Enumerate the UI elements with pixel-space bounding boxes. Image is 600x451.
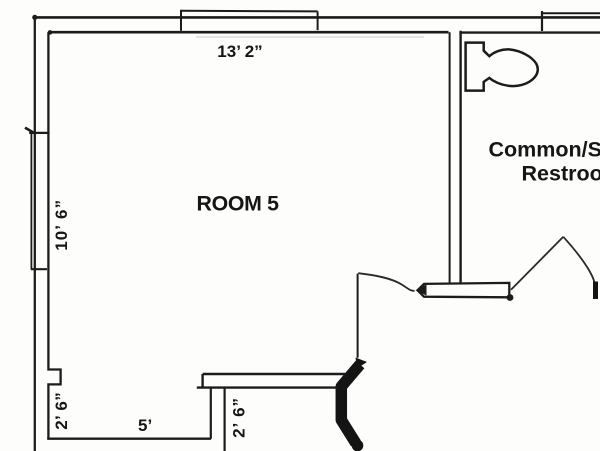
svg-text:Common/Shared: Common/Shared — [489, 137, 600, 161]
svg-text:5’: 5’ — [138, 416, 152, 435]
svg-text:2’ 6”: 2’ 6” — [230, 397, 249, 438]
svg-text:Restroom: Restroom — [522, 162, 600, 186]
svg-text:10’ 6”: 10’ 6” — [52, 199, 71, 251]
svg-text:2’ 6”: 2’ 6” — [52, 392, 71, 430]
svg-text:ROOM 5: ROOM 5 — [197, 192, 280, 216]
svg-text:13’ 2”: 13’ 2” — [217, 42, 262, 61]
